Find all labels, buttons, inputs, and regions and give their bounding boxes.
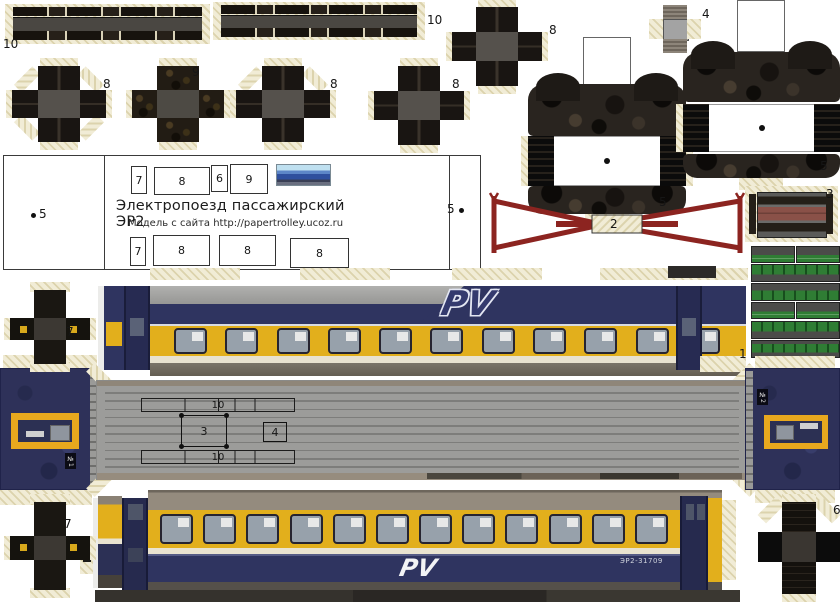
car-window — [419, 514, 452, 544]
car-window — [430, 328, 463, 354]
unfold-body — [757, 192, 827, 238]
part-number-10a: 10 — [3, 38, 18, 50]
roof-edge-band — [746, 371, 753, 489]
placement-slot-8f: 8 — [219, 235, 276, 266]
roof-walkway-strip-a — [5, 4, 210, 44]
roof-outline-strip-bottom: 10 — [141, 450, 295, 464]
car-window — [636, 328, 669, 354]
corner-dot — [179, 444, 184, 449]
unfold-face — [38, 118, 80, 142]
part-number-1-side: 1 — [739, 348, 747, 360]
unfold-face — [38, 66, 80, 90]
equipment-strip — [796, 246, 840, 263]
unfold-face — [304, 90, 330, 118]
car-skirt-stripe — [150, 356, 746, 363]
door-window — [697, 504, 705, 520]
car-window — [635, 514, 668, 544]
bogie-side-face — [683, 52, 840, 102]
door-window — [130, 318, 144, 336]
bogie-unfold-right — [683, 0, 840, 178]
part-number-8b: 8 — [330, 78, 338, 90]
glue-tab — [302, 66, 328, 92]
strip-segment-band — [13, 7, 202, 16]
glue-tab — [90, 318, 96, 340]
corner-dot — [224, 413, 229, 418]
car-window — [333, 514, 366, 544]
glue-tab — [78, 114, 104, 140]
buffer-light — [20, 326, 27, 333]
floor-panel: 5 5 7 8 6 9 Электропоезд пассажирский ЭР… — [3, 155, 481, 270]
glue-tab — [106, 90, 112, 118]
bogie-wheel-hump — [788, 41, 832, 69]
car-window — [225, 328, 258, 354]
center-mark-dot — [604, 158, 610, 164]
bogie-side-face — [528, 84, 686, 136]
box-unfold-9 — [126, 58, 230, 150]
unfold-face-center — [157, 90, 199, 118]
underframe-strip — [95, 590, 740, 602]
box-unfold-8b — [230, 58, 336, 150]
unfold-face — [236, 90, 262, 118]
glue-tab — [14, 66, 40, 92]
cab-window-frame — [11, 413, 79, 449]
sheet-subtitle: Модель с сайта http://papertrolley.ucoz.… — [128, 218, 358, 229]
car-end-column — [708, 498, 722, 582]
part-number-6: 6 — [833, 504, 840, 516]
bogie-wheel-hump — [536, 73, 580, 101]
buffer-beam-face — [10, 536, 90, 560]
placement-slot-7b: 7 — [130, 237, 146, 266]
unfold-face — [398, 120, 440, 145]
placement-slot-7: 7 — [131, 166, 147, 194]
roof-walkway-strip-b — [213, 2, 425, 40]
bogie-bottom-panel — [554, 136, 660, 186]
unfold-face — [12, 90, 38, 118]
alignment-dot-left — [31, 213, 36, 218]
strip-center-band — [13, 17, 202, 32]
roof-outline-rect-4: 4 — [263, 422, 287, 442]
train-photo-thumbnail — [276, 164, 331, 186]
part-number-2: 2 — [610, 218, 618, 230]
cab-window-frame — [764, 415, 828, 449]
car-window — [482, 328, 515, 354]
placement-slot-8g: 8 — [290, 238, 349, 268]
car-window — [328, 328, 361, 354]
glue-tab — [400, 145, 438, 153]
strip-segment-band — [13, 31, 202, 40]
roof-equipment-mark — [668, 266, 716, 278]
unfold-face-center — [34, 536, 66, 560]
cab-rear-panel — [98, 496, 122, 588]
slot-label: 9 — [246, 173, 253, 186]
unfold-face-center — [476, 32, 518, 61]
cab-number-plate-2: №2 — [757, 389, 768, 405]
glue-tab — [78, 66, 104, 92]
slot-label: 6 — [216, 172, 223, 185]
slot-label: 7 — [136, 174, 143, 187]
roof-outline-strip-top: 10 — [141, 398, 295, 412]
equipment-strip — [751, 283, 840, 301]
car-window — [174, 328, 207, 354]
window-row — [160, 514, 668, 544]
car-window — [549, 514, 582, 544]
car-roof-band — [148, 490, 722, 510]
placement-slot-9: 9 — [230, 164, 268, 194]
unfold-face — [440, 91, 464, 120]
buffer-beam-face — [10, 318, 90, 340]
bogie-end-face — [683, 104, 709, 152]
unfold-face — [262, 66, 304, 90]
car-window — [203, 514, 236, 544]
unfold-face — [452, 32, 476, 61]
cab-front-right: №2 — [745, 368, 840, 490]
slot-label: 8 — [179, 175, 186, 188]
corner-dot — [224, 444, 229, 449]
door-window — [686, 504, 694, 520]
unfold-face — [374, 91, 398, 120]
bogie-end-face — [814, 104, 840, 152]
bogie-end-face — [528, 136, 554, 186]
unfold-face — [157, 118, 199, 142]
glue-tab — [722, 500, 736, 580]
placement-slot-8: 8 — [154, 167, 210, 195]
glue-tab — [330, 90, 336, 118]
glue-tab — [782, 494, 816, 502]
part-number-8d: 8 — [549, 24, 557, 36]
car-window — [160, 514, 193, 544]
car-door-right — [680, 496, 708, 592]
car-side-upper: PV — [98, 278, 746, 380]
car-window — [379, 328, 412, 354]
bogie-unfold-left — [528, 36, 686, 214]
equipment-strip — [751, 264, 840, 282]
buffer-unfold-7a — [4, 282, 96, 372]
alignment-dot-right — [459, 208, 464, 213]
bogie-bottom-panel — [709, 104, 814, 152]
cab-marking — [800, 423, 818, 429]
cab-marking — [26, 431, 44, 437]
part-number-7a: 7 — [66, 326, 74, 338]
glue-tab — [758, 497, 785, 524]
marker-5-right: 5 — [447, 203, 455, 215]
buffer-unfold-7b — [4, 494, 96, 598]
cab-number-plate-1: №1 — [65, 453, 76, 469]
glue-tab — [159, 142, 197, 150]
unfold-face — [476, 61, 518, 86]
equipment-strip — [751, 302, 795, 319]
part-number-9: 9 — [192, 66, 200, 78]
slot-label: 7 — [135, 245, 142, 258]
unfold-face — [476, 7, 518, 32]
part-number-3: 3 — [826, 188, 834, 200]
equipment-strip — [796, 302, 840, 319]
car-door-right — [676, 286, 702, 370]
car-window — [592, 514, 625, 544]
equipment-strip — [751, 246, 795, 263]
slot-label: 8 — [244, 244, 251, 257]
unfold-face — [199, 90, 224, 118]
glue-tab — [238, 66, 264, 92]
outline-label: 4 — [272, 426, 279, 439]
placement-slot-8e: 8 — [153, 235, 210, 266]
glue-tab — [676, 104, 683, 152]
bogie-top-panel — [583, 37, 631, 85]
glue-tab — [521, 136, 528, 186]
part-number-10b: 10 — [427, 14, 442, 26]
placement-slot-6: 6 — [211, 165, 228, 192]
glue-tab — [264, 142, 302, 150]
slot-label: 8 — [178, 244, 185, 257]
panel-divider-left — [104, 156, 105, 269]
glue-tab — [478, 86, 516, 94]
buffer-light — [70, 544, 77, 551]
bogie-wheel-hump — [634, 73, 678, 101]
glue-tab — [464, 91, 470, 120]
outline-label: 10 — [212, 452, 225, 463]
buffer-beam-face — [758, 532, 840, 562]
outline-label: 3 — [201, 425, 208, 438]
unfold-face-center — [38, 90, 80, 118]
cab-window-glass — [50, 425, 70, 441]
buffer-light — [20, 544, 27, 551]
car-window — [505, 514, 538, 544]
car-window — [533, 328, 566, 354]
center-mark-dot — [759, 125, 765, 131]
part-number-5b: 5 — [820, 160, 828, 172]
roof-piece: 10 3 4 10 — [96, 380, 746, 480]
glue-tab — [782, 594, 816, 602]
car-window — [277, 328, 310, 354]
part-number-8a: 8 — [103, 78, 111, 90]
car-underframe — [150, 363, 746, 376]
door-panel — [128, 548, 143, 562]
corner-dot — [179, 413, 184, 418]
cab-window-panel — [106, 322, 122, 346]
door-window — [128, 504, 143, 520]
pv-logo-outline: PV — [438, 284, 498, 324]
slot-label: 8 — [316, 247, 323, 260]
glue-tab — [40, 142, 78, 150]
unfold-face — [80, 90, 106, 118]
car-number-text: ЭР2-31709 — [620, 557, 663, 565]
unfold-face-center — [782, 532, 816, 562]
roof-edge-top — [97, 381, 745, 386]
door-window — [682, 318, 696, 336]
glue-tab — [14, 114, 40, 140]
strip-segment-band — [221, 5, 417, 14]
marker-5-left: 5 — [39, 208, 47, 220]
equipment-strip — [751, 321, 840, 339]
car-window — [584, 328, 617, 354]
buffer-unfold-6 — [758, 494, 840, 602]
unfold-face-center — [398, 91, 440, 120]
strip-segment-band — [221, 28, 417, 37]
outline-label: 10 — [212, 400, 225, 411]
car-window — [246, 514, 279, 544]
bogie-side-face — [683, 154, 840, 178]
roof-edge-texture — [427, 473, 742, 479]
car-window — [462, 514, 495, 544]
papercraft-sheet: 10 10 8 9 — [0, 0, 840, 602]
box-unfold-8a — [6, 58, 112, 150]
window-row — [174, 328, 720, 354]
roof-outline-rect-3: 3 — [181, 415, 227, 447]
unfold-face — [262, 118, 304, 142]
car-window — [290, 514, 323, 544]
cab-front-left: №1 — [0, 368, 98, 490]
bogie-top-panel — [737, 0, 785, 52]
car-window — [376, 514, 409, 544]
unfold-side-tab — [749, 194, 756, 234]
car-door-left — [124, 286, 150, 370]
cab-rear-panel — [104, 286, 124, 370]
car-side-lower: PV ЭР2-31709 — [80, 488, 756, 602]
part-number-7b: 7 — [64, 518, 72, 530]
roof-rib — [105, 392, 739, 394]
pv-logo-white: PV — [397, 554, 439, 582]
cab-window-glass — [776, 425, 794, 440]
unfold-face — [398, 66, 440, 91]
car-lower-stripe: PV ЭР2-31709 — [148, 554, 722, 582]
strip-center-band — [221, 15, 417, 29]
unfold-face-center — [34, 318, 66, 340]
roof-rib — [105, 466, 739, 468]
bogie-wheel-hump — [691, 41, 735, 69]
car-door-left — [122, 498, 148, 590]
unfold-face-center — [262, 90, 304, 118]
roof-equipment-unfold-3 — [745, 186, 838, 242]
unfold-face — [132, 90, 157, 118]
glue-tab — [90, 536, 96, 560]
